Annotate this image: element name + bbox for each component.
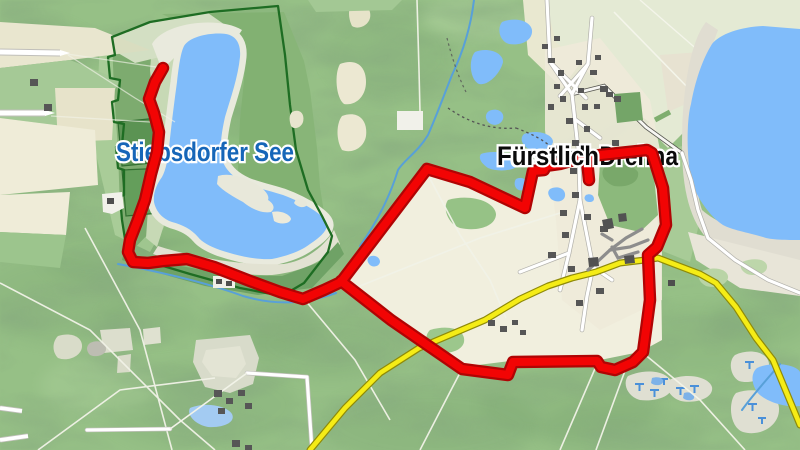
svg-text:Fürstlich: Fürstlich — [497, 141, 599, 171]
svg-text:Stiebsdorfer See: Stiebsdorfer See — [116, 137, 294, 167]
